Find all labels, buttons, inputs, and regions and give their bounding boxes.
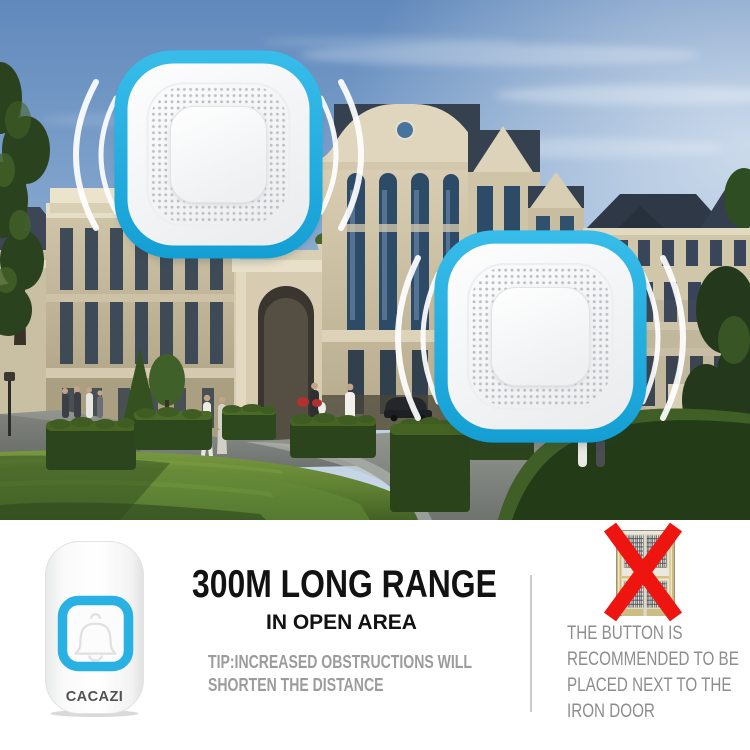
svg-text:CACAZI: CACAZI <box>66 689 124 705</box>
